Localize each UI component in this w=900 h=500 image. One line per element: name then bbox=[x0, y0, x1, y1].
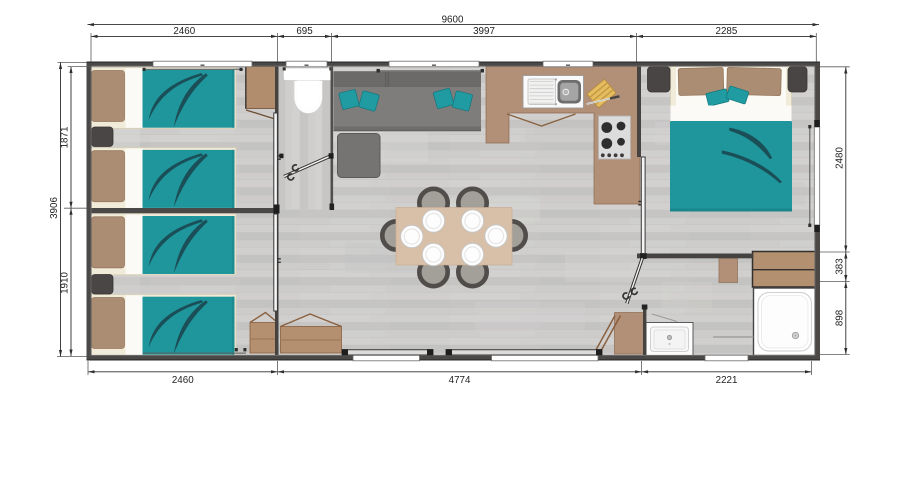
svg-text:898: 898 bbox=[834, 309, 845, 326]
svg-text:1871: 1871 bbox=[60, 127, 71, 149]
svg-text:2480: 2480 bbox=[834, 147, 845, 169]
svg-text:383: 383 bbox=[834, 258, 845, 275]
svg-text:2460: 2460 bbox=[172, 375, 194, 386]
svg-text:2285: 2285 bbox=[716, 26, 738, 37]
svg-text:3997: 3997 bbox=[473, 26, 495, 37]
svg-text:1910: 1910 bbox=[60, 272, 71, 294]
svg-text:4774: 4774 bbox=[449, 375, 471, 386]
svg-text:9600: 9600 bbox=[442, 14, 464, 25]
svg-text:2460: 2460 bbox=[173, 26, 195, 37]
svg-text:3906: 3906 bbox=[49, 197, 60, 219]
svg-text:2221: 2221 bbox=[716, 375, 738, 386]
svg-text:695: 695 bbox=[296, 26, 313, 37]
